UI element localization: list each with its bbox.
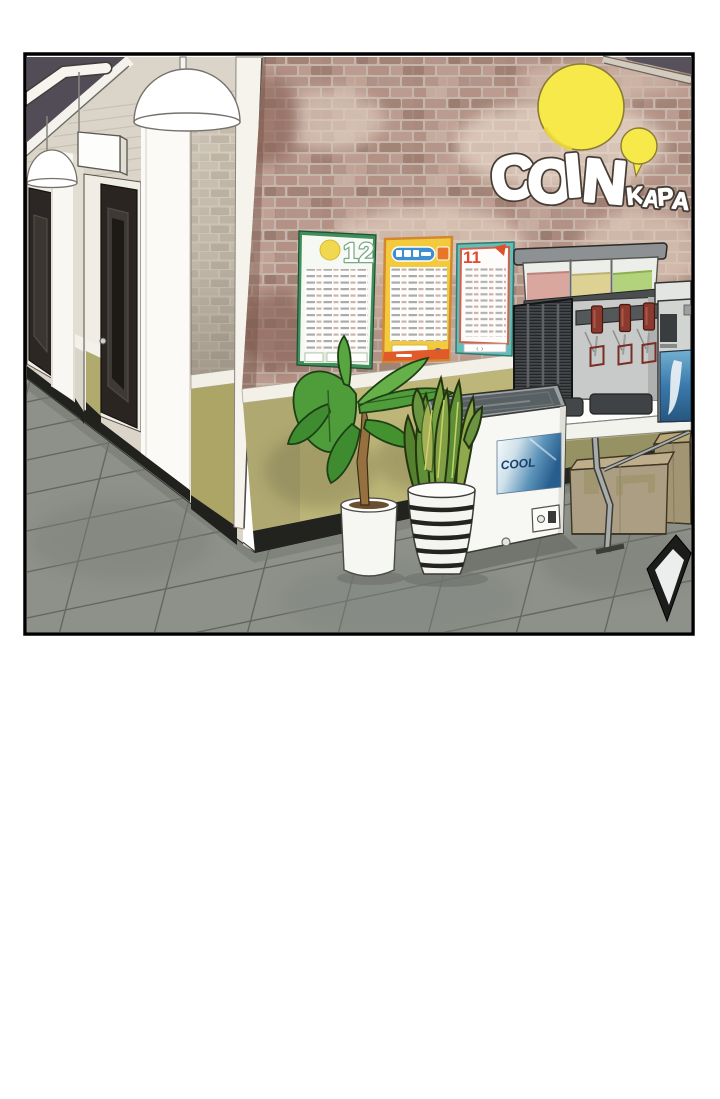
svg-text:‹ ›: ‹ › xyxy=(476,344,484,353)
svg-text:N: N xyxy=(580,146,629,217)
svg-text:12: 12 xyxy=(343,237,374,268)
svg-text:11: 11 xyxy=(463,248,481,267)
svg-text:A: A xyxy=(671,187,691,216)
